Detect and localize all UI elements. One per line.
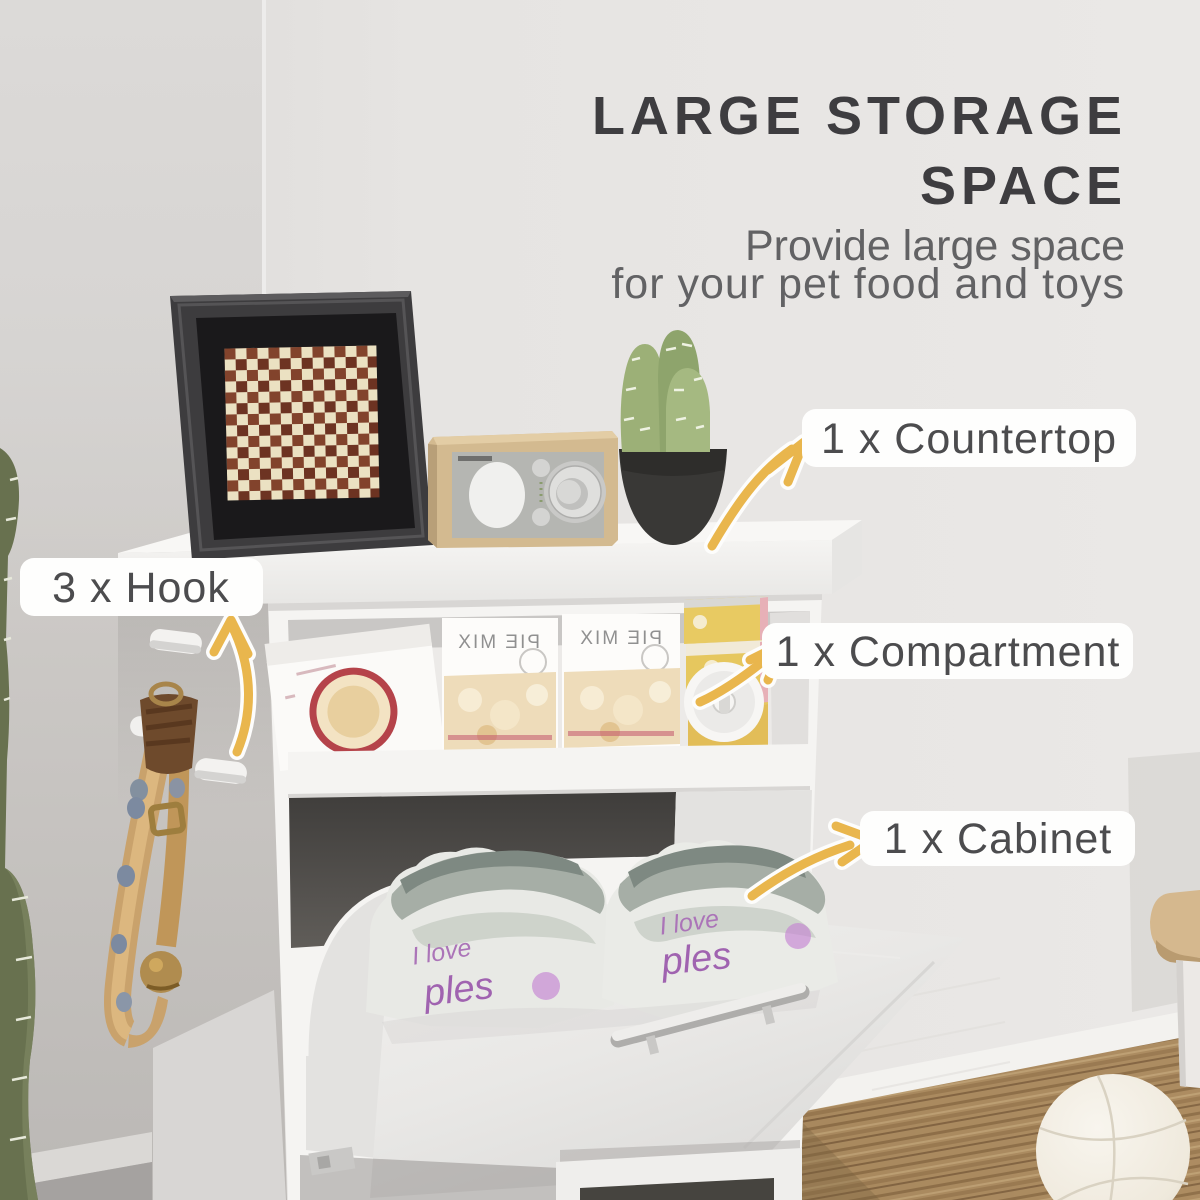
svg-text:ples: ples xyxy=(421,965,496,1015)
svg-text:ples: ples xyxy=(658,935,733,984)
svg-text:1 x Cabinet: 1 x Cabinet xyxy=(884,815,1113,863)
svg-text:1 x Compartment: 1 x Compartment xyxy=(776,628,1121,676)
svg-text:3 x Hook: 3 x Hook xyxy=(52,564,230,612)
svg-text:1 x Countertop: 1 x Countertop xyxy=(821,415,1117,463)
svg-text:SPACE: SPACE xyxy=(920,156,1127,216)
svg-text:for your pet food and toys: for your pet food and toys xyxy=(611,260,1125,308)
svg-text:LARGE STORAGE: LARGE STORAGE xyxy=(592,86,1127,146)
